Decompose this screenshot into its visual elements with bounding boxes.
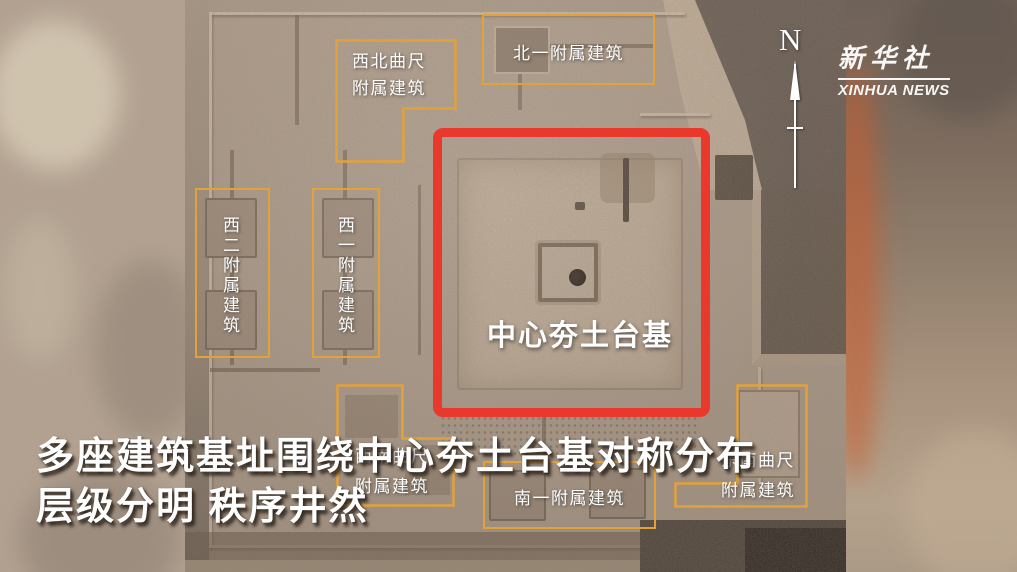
label-south1: 南一附属建筑 <box>483 485 656 512</box>
label-northwest: 西北曲尺 附属建筑 <box>352 48 426 102</box>
label-center-platform: 中心夯土台基 <box>470 312 690 354</box>
video-frame: 西北曲尺 附属建筑 北一附属建筑 西二附属建筑 西一附属建筑 中心夯土台基 南一… <box>0 0 1017 572</box>
xinhua-logo-chinese: 新华社 <box>838 38 950 80</box>
caption-line2: 层级分明 秩序井然 <box>36 475 369 530</box>
north-label: N <box>779 22 801 58</box>
red-highlight-box <box>433 128 710 417</box>
label-west1: 西一附属建筑 <box>336 216 353 336</box>
label-north1: 北一附属建筑 <box>482 40 655 67</box>
label-northwest-line2: 附属建筑 <box>352 75 426 102</box>
xinhua-logo: 新华社 XINHUA NEWS <box>838 38 950 99</box>
label-southeast-line2: 附属建筑 <box>721 476 795 506</box>
label-northwest-line1: 西北曲尺 <box>352 48 426 75</box>
label-west2: 西二附属建筑 <box>221 216 238 336</box>
xinhua-logo-english: XINHUA NEWS <box>838 82 950 99</box>
north-arrow-icon <box>782 58 808 192</box>
caption-line1: 多座建筑基址围绕中心夯土台基对称分布 <box>36 425 756 480</box>
